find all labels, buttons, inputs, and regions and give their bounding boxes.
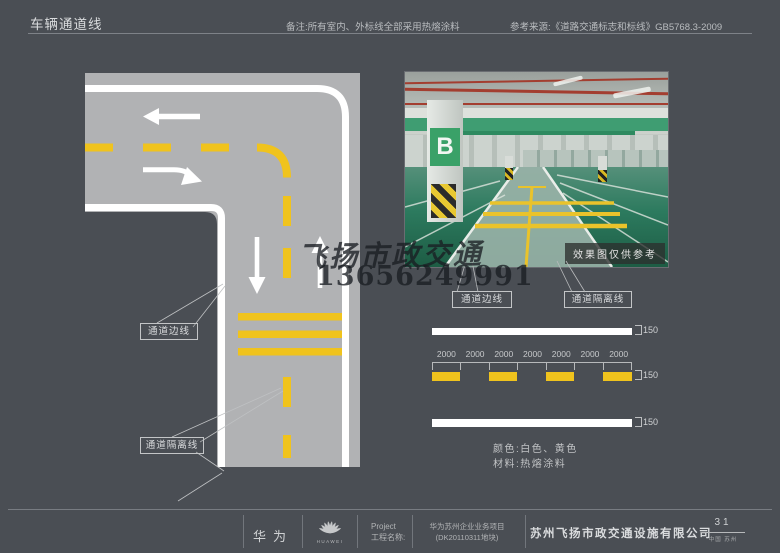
diagram-label-separation-line: 通道隔离线	[140, 437, 204, 454]
road-diagram-svg	[60, 55, 400, 507]
dash-length-label: 2000	[461, 349, 490, 359]
photo-column: B	[427, 100, 463, 222]
project-name-line1: 华为苏州企业业务项目	[420, 522, 514, 533]
header-note: 备注:所有室内、外标线全部采用热熔涂料	[286, 19, 460, 33]
spec-tick	[546, 362, 547, 370]
footer-separator	[302, 515, 303, 548]
huawei-en-wordmark: HUAWEI	[311, 539, 349, 544]
spec-solid-line-2	[432, 419, 632, 427]
footer-separator	[525, 515, 526, 548]
spec-tick	[574, 362, 575, 370]
spec-sheet-page: { "header": { "title": "车辆通道线", "note": …	[0, 0, 780, 553]
dimension-bracket-icon	[635, 370, 642, 380]
page-title: 车辆通道线	[30, 13, 103, 33]
photo-post-right	[598, 156, 607, 182]
huawei-logo-icon	[317, 515, 343, 537]
header-reference: 参考来源:《道路交通标志和标线》GB5768.3-2009	[510, 19, 722, 33]
yellow-bar-3	[238, 348, 342, 356]
dash-length-label: 2000	[604, 349, 633, 359]
road-marking-diagram: 通道边线 通道隔离线	[60, 55, 400, 507]
spec-yellow-dash-3	[546, 372, 574, 381]
spec-tick	[432, 362, 433, 370]
header-divider	[28, 33, 752, 34]
dimension-bracket-icon	[635, 325, 642, 335]
photo-label-edge-line: 通道边线	[452, 291, 512, 308]
footer-separator	[357, 515, 358, 548]
page-number-underline	[701, 532, 745, 533]
photo-label-separation-line: 通道隔离线	[564, 291, 632, 308]
footer-separator	[412, 515, 413, 548]
photo-hazard-stripes	[431, 184, 456, 218]
spec-color-note: 颜色:白色、黄色	[493, 440, 578, 455]
footer-location: 中国 苏州	[701, 535, 745, 543]
spec-dimension-line	[432, 362, 632, 363]
spec-dim-1: 150	[635, 325, 658, 335]
dash-length-label: 2000	[518, 349, 547, 359]
project-name-line2: (DK20110311地块)	[420, 533, 514, 544]
dash-length-label: 2000	[489, 349, 518, 359]
dimension-bracket-icon	[635, 417, 642, 427]
page-number: 31	[701, 517, 745, 528]
photo-parked-row	[523, 150, 668, 167]
garage-reference-photo: B 效果图仅供参考	[405, 72, 668, 267]
footer-separator	[243, 515, 244, 548]
spec-dim-3-value: 150	[643, 417, 658, 427]
project-label: Project 工程名称:	[371, 521, 405, 543]
photo-post-left	[505, 156, 513, 180]
yellow-bar-1	[238, 313, 342, 321]
spec-dim-3: 150	[635, 417, 658, 427]
huawei-cn-wordmark: 华为	[250, 526, 296, 545]
project-label-cn: 工程名称:	[371, 532, 405, 543]
spec-yellow-dash-1	[432, 372, 460, 381]
spec-tick	[603, 362, 604, 370]
dash-length-label: 2000	[547, 349, 576, 359]
spec-tick	[460, 362, 461, 370]
yellow-bar-2	[238, 331, 342, 339]
company-name: 苏州飞扬市政交通设施有限公司	[530, 525, 712, 541]
spec-dash-lengths: 2000 2000 2000 2000 2000 2000 2000	[432, 349, 633, 359]
spec-dim-2-value: 150	[643, 370, 658, 380]
photo-zone-sign: B	[430, 128, 460, 166]
diagram-label-edge-line: 通道边线	[140, 323, 198, 340]
dash-length-label: 2000	[432, 349, 461, 359]
spec-tick	[517, 362, 518, 370]
footer-divider	[8, 509, 772, 510]
spec-dim-1-value: 150	[643, 325, 658, 335]
spec-yellow-dash-2	[489, 372, 517, 381]
photo-caption: 效果图仅供参考	[565, 243, 665, 264]
spec-material-note: 材料:热熔涂料	[493, 455, 566, 470]
spec-dim-2: 150	[635, 370, 658, 380]
spec-yellow-dash-4	[603, 372, 632, 381]
dash-length-label: 2000	[576, 349, 605, 359]
spec-solid-line-1	[432, 328, 632, 335]
project-label-en: Project	[371, 521, 405, 532]
spec-tick	[489, 362, 490, 370]
project-name: 华为苏州企业业务项目 (DK20110311地块)	[420, 522, 514, 543]
spec-tick	[631, 362, 632, 370]
